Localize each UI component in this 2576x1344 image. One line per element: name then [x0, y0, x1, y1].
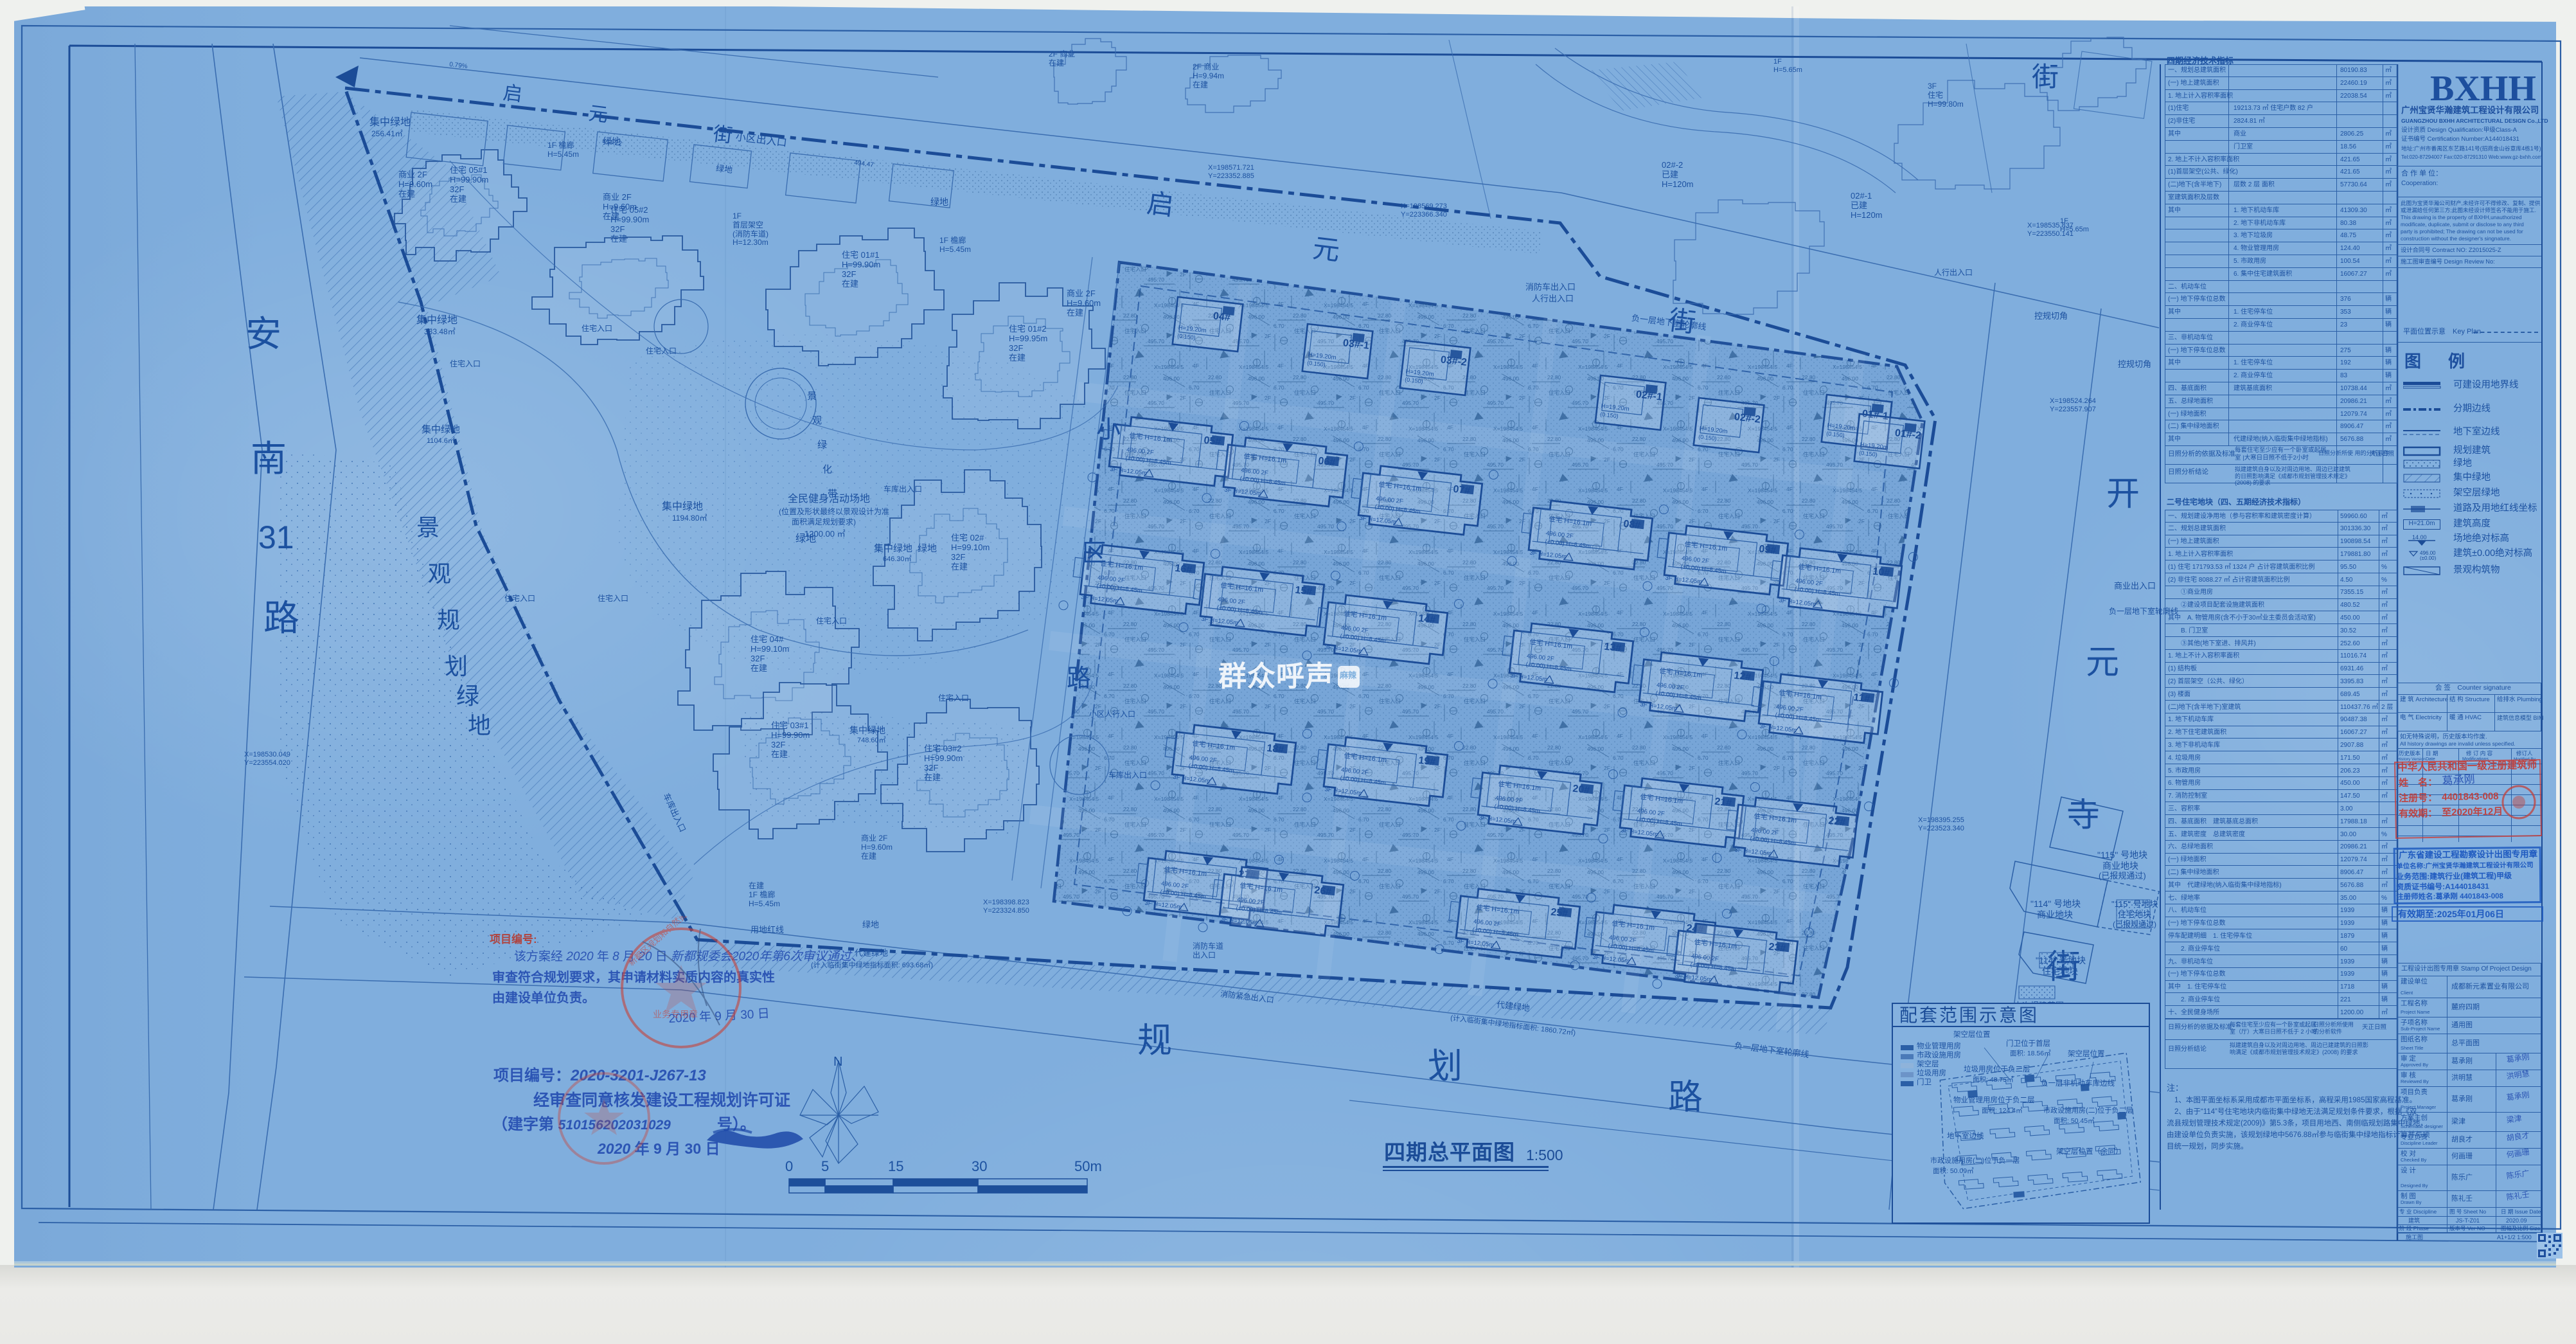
svg-text:15: 15: [888, 1158, 903, 1174]
svg-text:10#: 10#: [1872, 566, 1891, 579]
svg-text:0: 0: [785, 1158, 793, 1174]
svg-text:16#: 16#: [1175, 563, 1193, 576]
svg-text:14.00: 14.00: [2412, 534, 2427, 541]
svg-text:18#: 18#: [1266, 743, 1285, 756]
svg-text:20#: 20#: [1572, 784, 1591, 796]
svg-text:19#: 19#: [1418, 755, 1437, 768]
svg-text:23#: 23#: [1768, 942, 1787, 954]
svg-text:05#: 05#: [1204, 435, 1222, 448]
svg-text:新都区规划和自然资源局: 新都区规划和自然资源局: [626, 916, 701, 968]
svg-text:14#: 14#: [1418, 613, 1437, 626]
svg-text:22#: 22#: [1828, 816, 1847, 829]
svg-text:26#: 26#: [1314, 885, 1333, 898]
svg-text:30: 30: [972, 1158, 987, 1174]
svg-text:N: N: [833, 1055, 842, 1069]
svg-text:04#: 04#: [1212, 310, 1231, 323]
svg-text:15#: 15#: [1295, 585, 1313, 598]
svg-text:07#: 07#: [1453, 484, 1471, 497]
svg-text:5: 5: [821, 1158, 829, 1174]
svg-text:21#: 21#: [1714, 796, 1733, 809]
svg-text:11#: 11#: [1853, 692, 1871, 705]
svg-text:12#: 12#: [1734, 670, 1752, 683]
svg-text:50m: 50m: [1074, 1158, 1102, 1174]
svg-text:(±0.00): (±0.00): [2420, 555, 2437, 560]
svg-text:08#: 08#: [1623, 519, 1642, 532]
svg-text:09#: 09#: [1759, 544, 1777, 557]
svg-text:25#: 25#: [1550, 907, 1569, 920]
svg-text:13#: 13#: [1604, 641, 1622, 654]
svg-text:业务专用章: 业务专用章: [653, 1009, 698, 1019]
svg-text:06#: 06#: [1318, 456, 1337, 469]
